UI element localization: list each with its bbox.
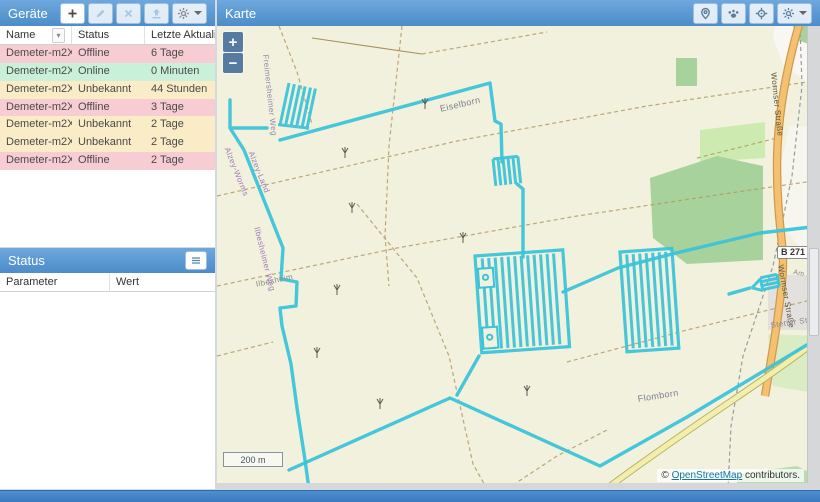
chevron-down-icon [194, 11, 202, 15]
status-panel: Status Parameter Wert [0, 248, 215, 489]
map-marker-button[interactable] [693, 3, 718, 24]
device-row[interactable]: Demeter-m2Xper... Unbekannt 2 Tage [0, 116, 215, 134]
gear-icon [782, 7, 795, 20]
status-table-header: Parameter Wert [0, 273, 215, 292]
gear-icon [177, 7, 190, 20]
column-header-name[interactable]: Name ▾ [0, 26, 72, 44]
map-scale-indicator: 200 m [223, 452, 283, 467]
column-header-updated[interactable]: Letzte Aktualisie... [145, 26, 215, 44]
close-icon [123, 8, 134, 19]
crosshair-icon [755, 7, 768, 20]
bottom-statusbar [0, 490, 820, 502]
paw-icon [727, 7, 740, 20]
map-center-button[interactable] [749, 3, 774, 24]
devices-table-body: Demeter-m2Xper... Offline 6 Tage Demeter… [0, 45, 215, 170]
devices-panel-header: Geräte [0, 0, 215, 26]
openstreetmap-link[interactable]: OpenStreetMap [672, 470, 743, 481]
map-panel-title: Karte [225, 6, 256, 21]
pencil-icon [95, 8, 106, 19]
add-device-button[interactable] [60, 3, 85, 24]
status-table-body [0, 292, 215, 489]
zoom-out-button[interactable]: − [223, 53, 243, 73]
upload-device-button[interactable] [144, 3, 169, 24]
status-list-button[interactable] [185, 251, 207, 270]
column-header-wert[interactable]: Wert [110, 273, 215, 291]
plus-icon [67, 8, 78, 19]
map-tiles [217, 26, 820, 489]
map-attribution: © OpenStreetMap contributors. [657, 469, 804, 482]
marker-icon [699, 7, 712, 20]
column-header-status[interactable]: Status [72, 26, 145, 44]
vertical-scrollbar[interactable] [807, 26, 820, 483]
road-shield-b271: B 271 [777, 246, 809, 259]
column-header-parameter[interactable]: Parameter [0, 273, 110, 291]
list-icon [190, 255, 202, 266]
devices-panel-title: Geräte [8, 6, 48, 21]
status-panel-title: Status [8, 253, 45, 268]
map-tracks-button[interactable] [721, 3, 746, 24]
edit-device-button[interactable] [88, 3, 113, 24]
delete-device-button[interactable] [116, 3, 141, 24]
vertical-scrollbar-thumb[interactable] [809, 248, 819, 336]
device-row[interactable]: Demeter-m2Xper... Unbekannt 2 Tage [0, 134, 215, 152]
forest-patch [676, 58, 697, 86]
horizontal-scrollbar[interactable] [217, 483, 820, 489]
devices-panel: Geräte Name ▾ Status [0, 0, 215, 247]
upload-icon [151, 8, 162, 19]
devices-table-header: Name ▾ Status Letzte Aktualisie... [0, 26, 215, 45]
device-row[interactable]: Demeter-m2Xper... Offline 6 Tage [0, 45, 215, 63]
map-zoom-control: + − [222, 31, 244, 74]
device-row[interactable]: Demeter-m2Xper... Offline 2 Tage [0, 152, 215, 170]
chevron-down-icon [799, 11, 807, 15]
map-canvas[interactable]: Eiselborn Freimersheimer Weg Alzey-Worms… [217, 26, 820, 489]
device-settings-button[interactable] [172, 3, 207, 24]
map-panel-header: Karte [217, 0, 820, 26]
device-row[interactable]: Demeter-m2Xper... Offline 3 Tage [0, 99, 215, 117]
device-row[interactable]: Demeter-m2Xper... Online 0 Minuten [0, 63, 215, 81]
map-settings-button[interactable] [777, 3, 812, 24]
map-panel: Karte [217, 0, 820, 489]
column-menu-trigger[interactable]: ▾ [52, 28, 65, 43]
device-row[interactable]: Demeter-m2Xper... Unbekannt 44 Stunden [0, 81, 215, 99]
status-panel-header: Status [0, 248, 215, 273]
zoom-in-button[interactable]: + [223, 32, 243, 52]
